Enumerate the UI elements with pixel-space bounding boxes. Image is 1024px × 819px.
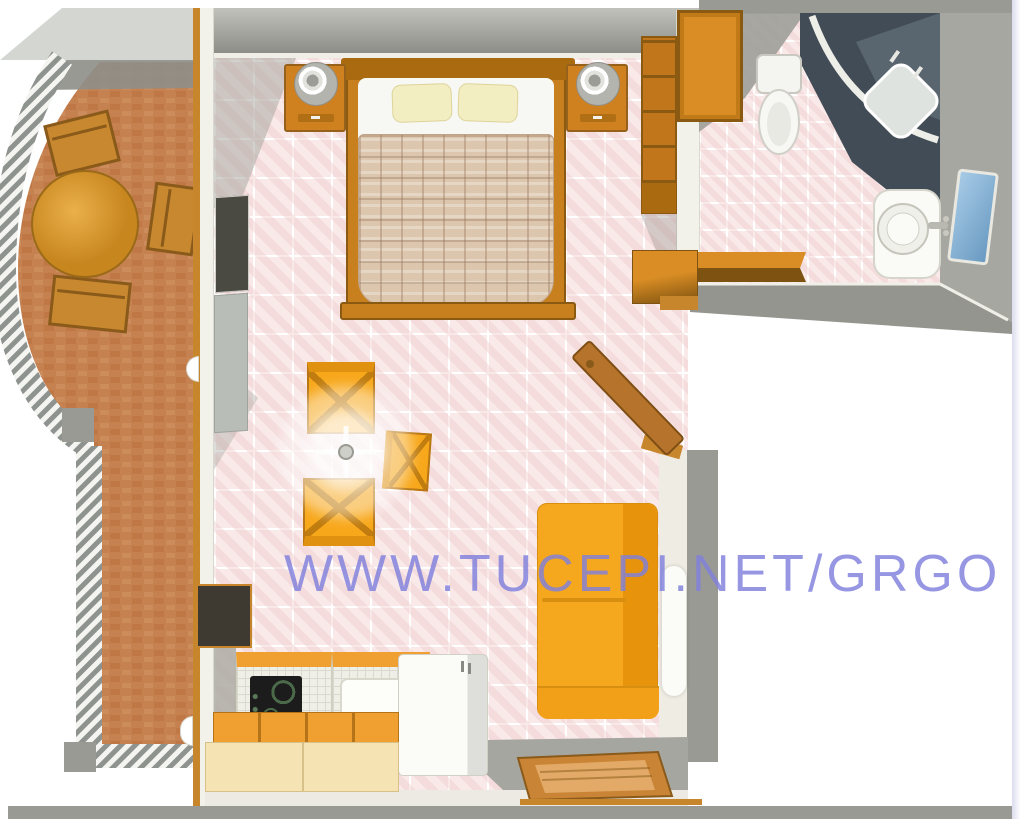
watermark-text: WWW.TUCEPI.NET/GRGO (284, 544, 1024, 604)
door-frame-top (660, 296, 698, 310)
ceiling-fan-hub (339, 445, 353, 459)
entry-threshold (520, 799, 702, 805)
entry-door-and-mat (0, 0, 1024, 819)
image-right-edge (1012, 0, 1024, 819)
floor-plan-image: WWW.TUCEPI.NET/GRGO (0, 0, 1024, 819)
entry-door-leaf (572, 341, 684, 456)
bottom-wall (8, 806, 1012, 819)
door-handle (586, 360, 594, 368)
